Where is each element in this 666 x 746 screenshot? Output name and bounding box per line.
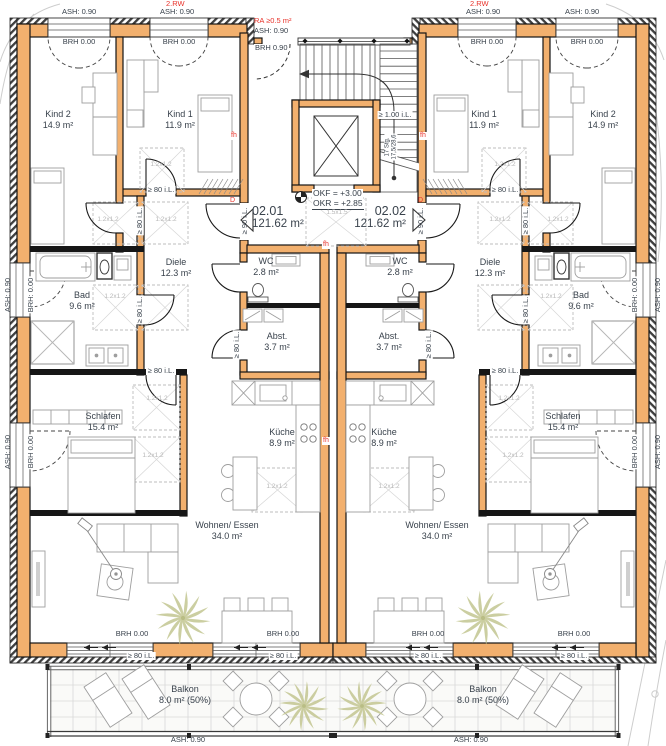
room-label-wc-left: WC2.8 m² (253, 256, 279, 277)
stair-count: 17 Stg. 17,5/28,6 (384, 133, 397, 160)
room-label-abst-right: Abst.3.7 m² (376, 331, 402, 352)
fh-tag-2: fh (419, 132, 427, 140)
skylight-15-label: 1.5x1.5 (326, 209, 347, 216)
sky12-10: 1.2x1.2 (494, 161, 515, 168)
unit-id-left: 02.01 (252, 204, 304, 218)
ash-left-bad: ASH: 0.90 (4, 278, 12, 312)
room-label-diele-right: Diele12.3 m² (475, 257, 506, 278)
room-label-bad-left: Bad9.6 m² (69, 290, 95, 311)
ash-ra: ASH: 0.90 (254, 27, 288, 35)
clearance-abst-right: ≥ 80 i.L. (425, 331, 433, 360)
room-label-schlafen-left: Schlafen15.4 m² (85, 411, 120, 432)
clearance-bad-left: ≥ 80 i.L. (136, 296, 144, 325)
ash-top-right: ASH: 0.90 (565, 8, 599, 16)
sky12-7: 1.2x1.2 (266, 483, 287, 490)
ash-top-right2: ASH: 0.90 (466, 8, 500, 16)
room-label-diele-left: Diele12.3 m² (161, 257, 192, 278)
entry-clearance-left: ≥ 90 i.L. (241, 208, 249, 235)
sky12-3: 1.2x1.2 (150, 161, 171, 168)
sky12-4: 1.2x1.2 (104, 293, 125, 300)
ash-top-left: ASH: 0.90 (62, 8, 96, 16)
clearance-bad-right: ≥ 80 i.L. (522, 296, 530, 325)
unit-area-right: 121.62 m² (354, 218, 406, 231)
sky12-9: 1.2x1.2 (489, 216, 510, 223)
clearance-slider-2: ≥ 80 i.L. (269, 652, 298, 660)
floorplan-page: ASH: 0.90 2.RW ASH: 0.90 2.RW ASH: 0.90 … (0, 0, 666, 746)
brh-window-1: BRH 0.00 (63, 38, 96, 46)
clearance-abst-left: ≥ 80 i.L. (233, 331, 241, 360)
ash-right-schlafen: ASH: 0.90 (654, 435, 662, 469)
room-label-wc-right: WC2.8 m² (387, 256, 413, 277)
unit-id-right: 02.02 (354, 204, 406, 218)
clearance-schlafen-right: ≥ 80 i.L. (491, 367, 520, 375)
entry-clearance-right: ≥ 90 i.L. (417, 208, 425, 235)
room-label-balkon-right: Balkon8.0 m² (50%) (457, 684, 509, 705)
brh-window-3: BRH 0.00 (471, 38, 504, 46)
room-label-wohnen-right: Wohnen/ Essen34.0 m² (405, 520, 468, 541)
sky12-1: 1.2x1.2 (97, 216, 118, 223)
brh-left-bad: BRH: 0.00 (27, 277, 35, 314)
ash-left-schlafen: ASH: 0.90 (4, 435, 12, 469)
ash-balcony-left: ASH: 0.90 (171, 736, 205, 744)
fh-tag-3: fh (322, 241, 330, 249)
room-label-bad-right: Bad9.6 m² (568, 290, 594, 311)
sky12-8: 1.2x1.2 (547, 216, 568, 223)
sky12-5: 1.2x1.2 (146, 395, 167, 402)
room-label-kind2-right: Kind 214.9 m² (588, 109, 619, 130)
unit-label-0202: 02.02 121.62 m² (354, 204, 406, 231)
clearance-slider-1: ≥ 80 i.L. (127, 652, 156, 660)
brh-slider-1: BRH 0.00 (116, 630, 149, 638)
fh-tag-1: fh (230, 132, 238, 140)
unit-label-0201: 02.01 121.62 m² (252, 204, 304, 231)
sky12-11: 1.2x1.2 (540, 293, 561, 300)
stair-clearance: ≥ 1.00 i.L. (378, 111, 413, 119)
clearance-slider-3: ≥ 80 i.L. (414, 652, 443, 660)
ash-balcony-right: ASH: 0.90 (454, 736, 488, 744)
unit-area-left: 121.62 m² (252, 218, 304, 231)
sky12-6: 1.2x1.2 (142, 452, 163, 459)
clearance-corridor-left: ≥ 80 i.L. (136, 207, 144, 236)
door-tag-left: D (230, 197, 235, 205)
brh-window-2: BRH 0.00 (163, 38, 196, 46)
clearance-corridor-right: ≥ 80 i.L. (522, 207, 530, 236)
door-tag-right: D (418, 197, 423, 205)
brh-window-4: BRH 0.00 (571, 38, 604, 46)
brh-slider-4: BRH 0.00 (558, 630, 591, 638)
fh-tag-4: fh (322, 437, 330, 445)
brh-left-schlafen: BRH 0.00 (27, 435, 35, 470)
ra-vent-label: RA ≥0.5 m² (254, 17, 291, 25)
sky12-14: 1.2x1.2 (378, 483, 399, 490)
sky12-13: 1.2x1.2 (502, 452, 523, 459)
room-label-kind2-left: Kind 214.9 m² (43, 109, 74, 130)
brh-slider-2: BRH 0.00 (267, 630, 300, 638)
room-label-wohnen-left: Wohnen/ Essen34.0 m² (195, 520, 258, 541)
clearance-slider-4: ≥ 80 i.L. (560, 652, 589, 660)
room-label-kueche-left: Küche8.9 m² (269, 427, 295, 448)
room-label-schlafen-right: Schlafen15.4 m² (545, 411, 580, 432)
sky12-2: 1.2x1.2 (155, 216, 176, 223)
sky12-12: 1.2x1.2 (498, 395, 519, 402)
clearance-kind1-right: ≥ 80 i.L. (491, 186, 520, 194)
clearance-schlafen-left: ≥ 80 i.L. (147, 367, 176, 375)
room-label-kind1-right: Kind 111.9 m² (469, 109, 499, 130)
ash-right-bad: ASH: 0.90 (654, 278, 662, 312)
brh-stair-window: BRH 0.90 (254, 44, 289, 52)
room-label-abst-left: Abst.3.7 m² (264, 331, 290, 352)
brh-slider-3: BRH 0.00 (412, 630, 445, 638)
room-label-kueche-right: Küche8.9 m² (371, 427, 397, 448)
brh-right-schlafen: BRH 0.00 (631, 435, 639, 470)
brh-right-bad: BRH: 0.00 (631, 277, 639, 314)
room-label-kind1-left: Kind 111.9 m² (165, 109, 195, 130)
clearance-kind1-left: ≥ 80 i.L. (147, 186, 176, 194)
room-label-balkon-left: Balkon8.0 m² (50%) (159, 684, 211, 705)
ash-top-left2: ASH: 0.90 (160, 8, 194, 16)
